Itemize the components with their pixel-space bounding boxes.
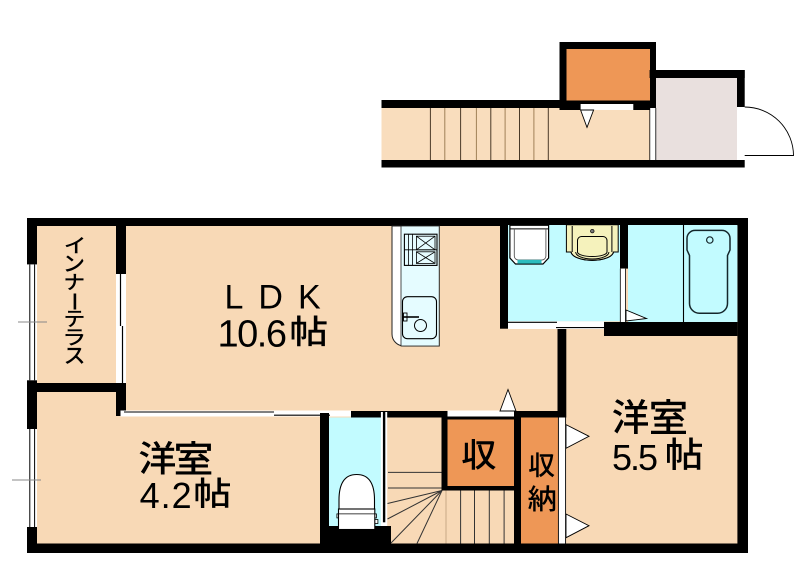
svg-text:10.6: 10.6 — [218, 313, 286, 355]
svg-text:5.5: 5.5 — [612, 437, 657, 478]
svg-text:4.2: 4.2 — [140, 475, 193, 516]
svg-text:LDK: LDK — [225, 279, 336, 317]
